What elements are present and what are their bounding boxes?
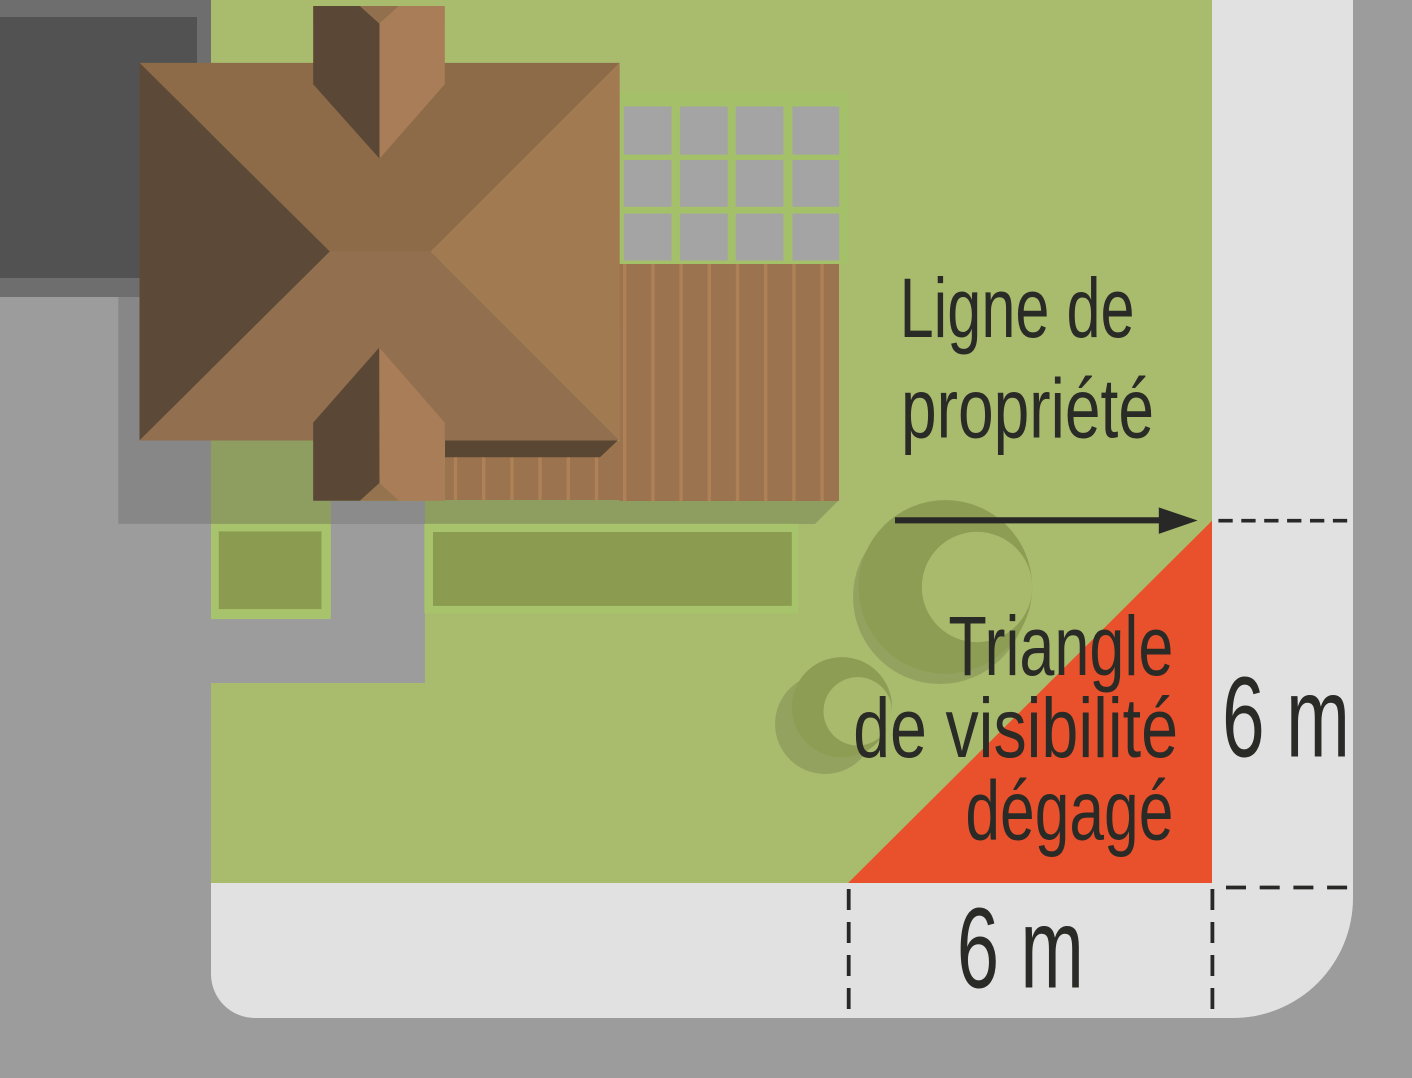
svg-text:propriété: propriété: [901, 361, 1154, 455]
svg-text:Triangle: Triangle: [948, 599, 1173, 693]
svg-text:Ligne de: Ligne de: [900, 261, 1135, 355]
svg-text:6 m: 6 m: [1222, 655, 1350, 782]
svg-text:dégagé: dégagé: [965, 764, 1173, 858]
svg-text:de visibilité: de visibilité: [853, 681, 1178, 775]
svg-text:6 m: 6 m: [957, 886, 1084, 1013]
